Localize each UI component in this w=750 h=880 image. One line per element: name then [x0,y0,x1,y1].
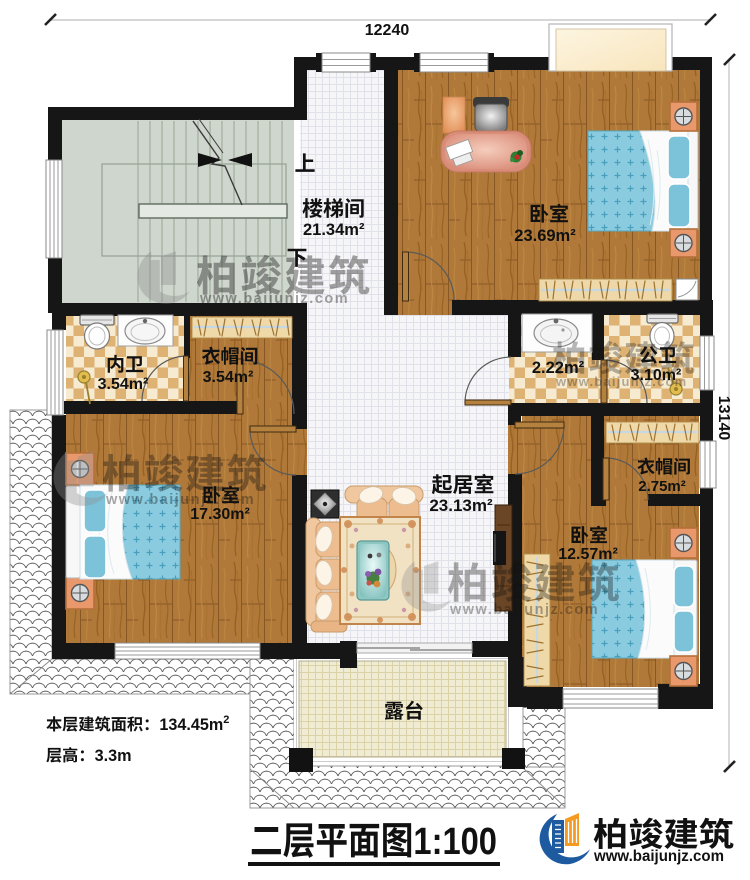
svg-text:2.75m²: 2.75m² [638,478,686,495]
svg-text:起居室: 起居室 [432,469,495,499]
svg-text:www.baijunjz.com: www.baijunjz.com [449,602,599,618]
svg-text:卧室: 卧室 [529,198,569,227]
svg-text:楼梯间: 楼梯间 [302,193,365,223]
svg-text:上: 上 [295,148,316,178]
svg-text:露台: 露台 [384,695,424,724]
svg-text:www.baijunjz.com: www.baijunjz.com [555,374,687,389]
svg-text:衣帽间: 衣帽间 [201,342,258,369]
svg-text:17.30m²: 17.30m² [190,506,250,523]
svg-text:21.34m²: 21.34m² [303,221,365,239]
svg-text:13140: 13140 [715,396,732,441]
svg-text:衣帽间: 衣帽间 [637,453,691,479]
svg-text:www.baijunjz.com: www.baijunjz.com [199,291,349,307]
svg-text:23.13m²: 23.13m² [429,496,493,515]
svg-text:www.baijunjz.com: www.baijunjz.com [105,492,255,508]
svg-text:内卫: 内卫 [106,350,144,377]
svg-text:3.54m²: 3.54m² [98,376,149,393]
svg-text:12240: 12240 [365,22,410,39]
svg-text:卧室: 卧室 [570,521,608,548]
svg-text:www.baijunjz.com: www.baijunjz.com [593,848,724,865]
svg-text:23.69m²: 23.69m² [514,227,576,245]
svg-text:3.54m²: 3.54m² [203,369,254,386]
